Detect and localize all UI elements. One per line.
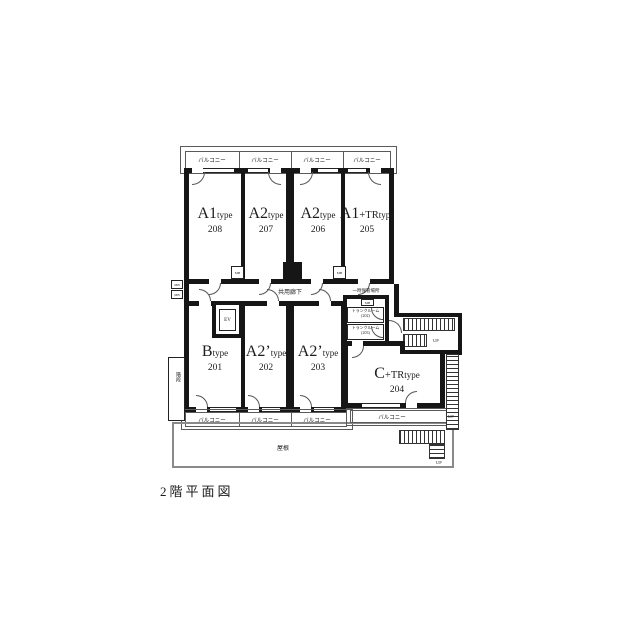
door-arc xyxy=(196,395,208,407)
unit-label-206: A2type 206 xyxy=(300,205,335,235)
stair-steps xyxy=(429,444,445,459)
corridor-label: 共用廊下 xyxy=(278,287,302,296)
wall xyxy=(241,170,245,279)
stair-steps xyxy=(403,334,427,347)
unit-number: 203 xyxy=(298,363,338,373)
side-stair-shaft: 階段 xyxy=(168,357,185,421)
unit-type: A2 xyxy=(248,205,268,222)
window xyxy=(248,168,268,173)
unit-label-207: A2type 207 xyxy=(248,205,283,235)
wall xyxy=(400,341,405,354)
meter-box: MB xyxy=(171,280,183,289)
unit-type: A2’ xyxy=(246,343,271,360)
unit-number: 207 xyxy=(248,225,283,235)
door-gap xyxy=(267,301,279,306)
stair-steps xyxy=(399,430,445,444)
stairs-label: 階段 xyxy=(174,372,181,382)
door-arc xyxy=(209,283,221,295)
meter-box: MB xyxy=(171,290,183,299)
meter-box: MB xyxy=(333,266,346,279)
trunk-room-number: (203) xyxy=(361,330,370,335)
unit-type: A2 xyxy=(300,205,320,222)
door-gap xyxy=(199,301,211,306)
unit-number: 206 xyxy=(300,225,335,235)
door-arc xyxy=(192,172,205,185)
door-arc xyxy=(268,172,281,185)
unit-number: 202 xyxy=(246,363,286,373)
door-arc xyxy=(300,395,312,407)
page-title: 2階平面図 xyxy=(160,481,234,500)
up-label: UP xyxy=(436,460,442,465)
trunk-room-number: (202) xyxy=(361,313,370,318)
window xyxy=(318,168,338,173)
unit-label-205: A1+TRtype 205 xyxy=(340,205,394,235)
unit-type: A1 xyxy=(340,205,360,222)
door-arc xyxy=(368,172,381,185)
door-arc xyxy=(300,172,313,185)
door-arc xyxy=(248,395,260,407)
balcony-label: バルコニー xyxy=(353,156,380,164)
balcony-label: バルコニー xyxy=(251,156,278,164)
wall xyxy=(343,341,348,408)
roof-label: 屋根 xyxy=(277,443,289,452)
wall xyxy=(286,306,294,407)
meter-box: MB xyxy=(231,266,244,279)
window xyxy=(348,168,366,173)
door-arc xyxy=(352,346,364,358)
meter-box: MB xyxy=(361,299,374,306)
stair-steps xyxy=(403,318,455,331)
wall xyxy=(440,350,445,408)
storage-label: 一時保管場所 xyxy=(353,288,380,294)
balcony-label: バルコニー xyxy=(198,156,225,164)
unit-label-208: A1type 208 xyxy=(197,205,232,235)
unit-number: 201 xyxy=(202,363,228,373)
unit-number: 205 xyxy=(340,225,394,235)
up-label: UP xyxy=(448,414,454,419)
door-arc xyxy=(319,289,331,301)
door-gap xyxy=(319,301,331,306)
elevator-car: EV xyxy=(219,309,236,331)
window xyxy=(202,168,234,173)
elevator-label: EV xyxy=(224,318,231,323)
balcony-label: バルコニー xyxy=(378,413,405,421)
floor-plan: バルコニー バルコニー バルコニー バルコニー A1type 208 A2typ… xyxy=(0,0,640,640)
unit-number: 208 xyxy=(197,225,232,235)
unit-type: A2’ xyxy=(298,343,323,360)
unit-label-202: A2’type 202 xyxy=(246,343,286,373)
unit-label-203: A2’type 203 xyxy=(298,343,338,373)
unit-label-201: Btype 201 xyxy=(202,343,228,373)
wall xyxy=(394,313,462,317)
door-arc xyxy=(389,320,402,333)
balcony-label: バルコニー xyxy=(303,156,330,164)
roof-area xyxy=(172,422,454,468)
wall-pier xyxy=(283,262,302,284)
up-label: UP xyxy=(433,338,439,343)
wall xyxy=(458,313,462,355)
unit-type: C xyxy=(374,365,385,382)
unit-type: B xyxy=(202,343,213,360)
wall xyxy=(241,306,245,407)
unit-type: A1 xyxy=(197,205,217,222)
